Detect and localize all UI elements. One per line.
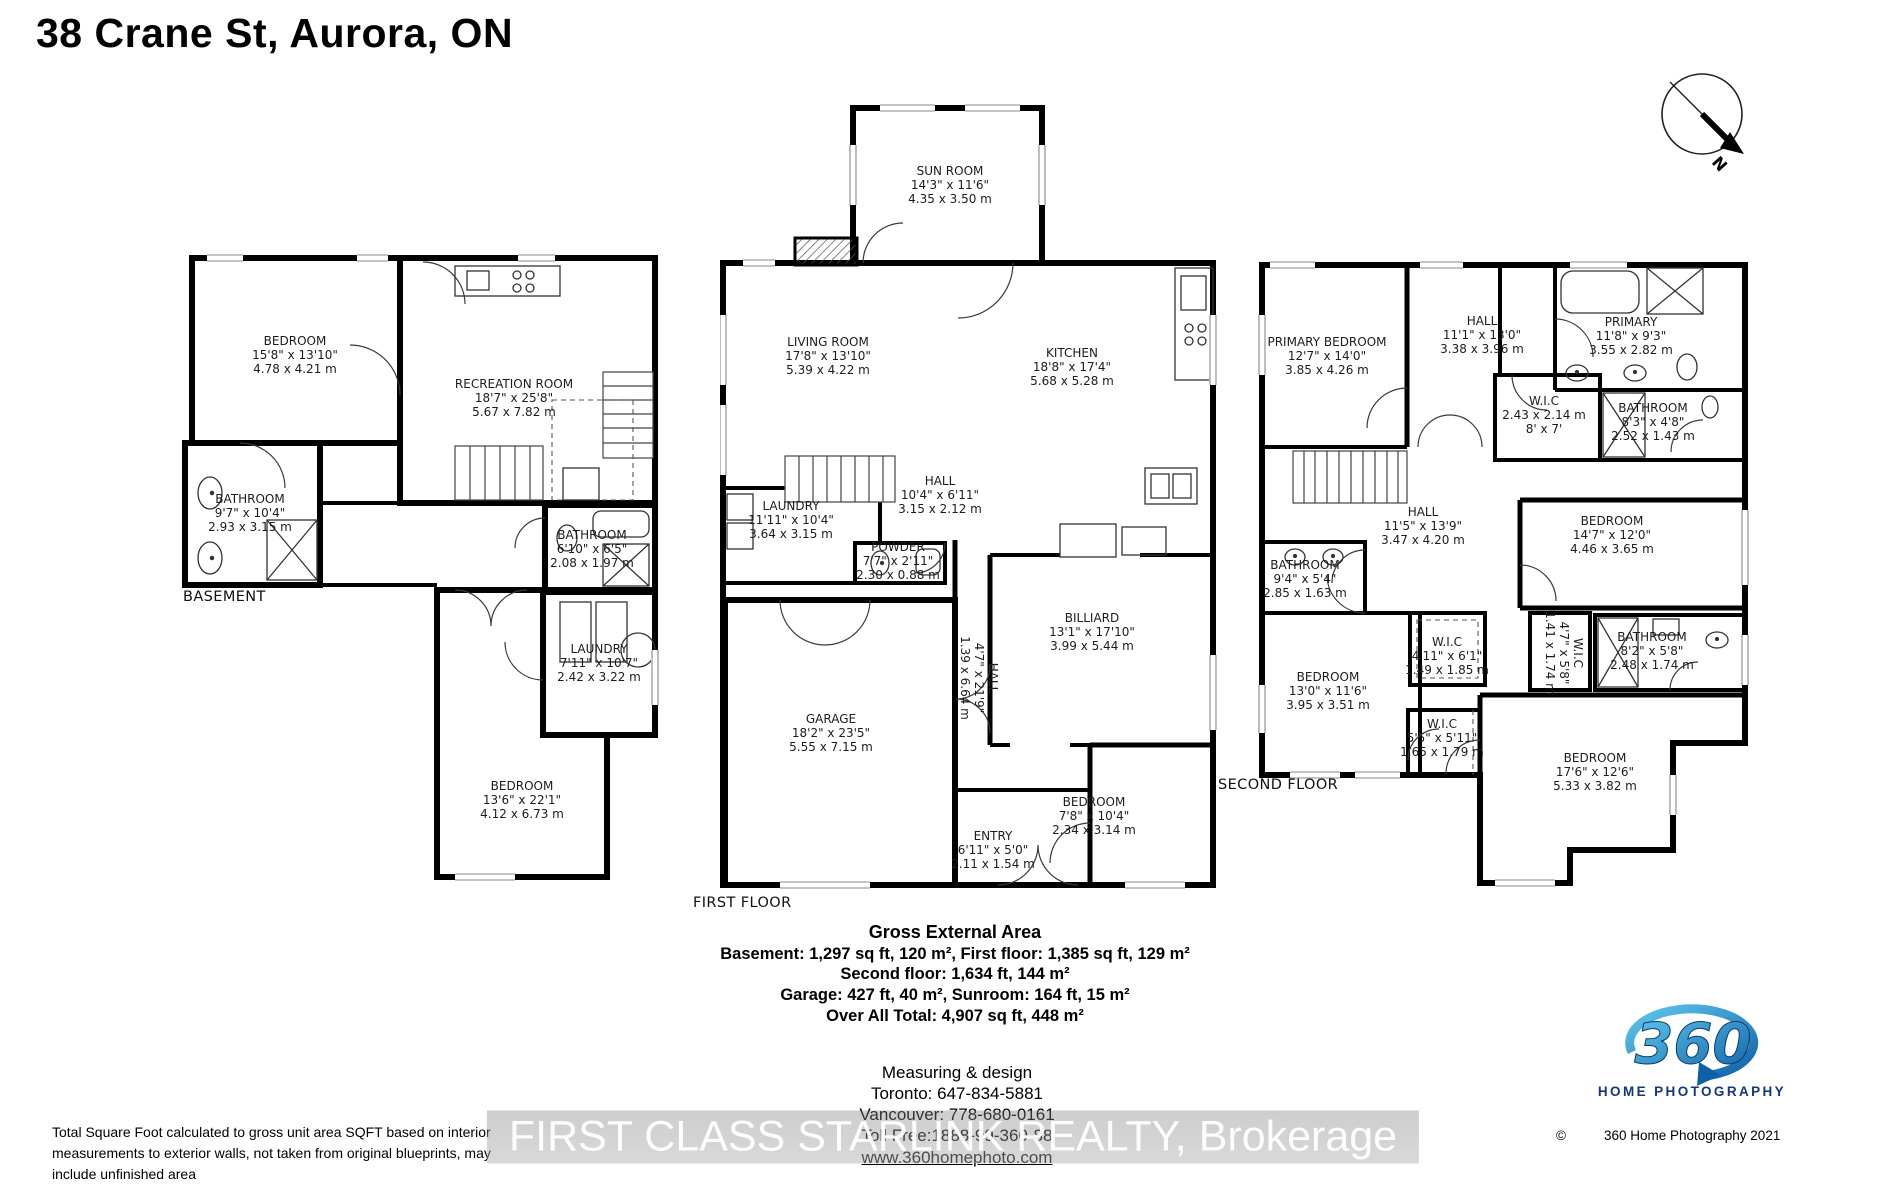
basement-room-label-bathroom-1: BATHROOM9'7" x 10'4"2.93 x 3.15 m xyxy=(208,493,292,535)
basement-room-label-bedroom-2: BEDROOM13'6" x 22'1"4.12 x 6.73 m xyxy=(480,780,564,822)
second-room-label-bathroom-3: BATHROOM8'2" x 5'8"2.48 x 1.74 m xyxy=(1610,631,1694,673)
contact-phone-toronto: Toronto: 647-834-5881 xyxy=(859,1083,1054,1104)
svg-text:N: N xyxy=(1708,153,1731,172)
copyright-line: © 360 Home Photography 2021 xyxy=(1556,1128,1780,1143)
gross-area-line: Second floor: 1,634 ft, 144 m² xyxy=(720,964,1190,985)
first-room-label-powder: POWDER7'7" x 2'11"2.30 x 0.88 m xyxy=(856,541,940,583)
copyright-credit: 360 Home Photography 2021 xyxy=(1604,1128,1780,1143)
second-room-label-bedroom-2: BEDROOM13'0" x 11'6"3.95 x 3.51 m xyxy=(1286,671,1370,713)
first-room-label-living: LIVING ROOM17'8" x 13'10"5.39 x 4.22 m xyxy=(785,336,871,378)
gross-area-line: Over All Total: 4,907 sq ft, 448 m² xyxy=(720,1006,1190,1027)
basement-walls xyxy=(155,250,665,910)
basement-room-label-bathroom-2: BATHROOM6'10" x 6'5"2.08 x 1.97 m xyxy=(550,529,634,571)
second-room-label-bathroom-2: BATHROOM9'4" x 5'4"2.85 x 1.63 m xyxy=(1263,559,1347,601)
basement-floor-name: BASEMENT xyxy=(183,589,266,605)
second-floor-name: SECOND FLOOR xyxy=(1218,777,1338,793)
second-room-label-wic-4: W.I.C5'5" x 5'11"1.65 x 1.79 m xyxy=(1400,718,1484,760)
first-room-label-sunroom: SUN ROOM14'3" x 11'6"4.35 x 3.50 m xyxy=(908,165,992,207)
first-room-label-billiard: BILLIARD13'1" x 17'10"3.99 x 5.44 m xyxy=(1049,612,1135,654)
second-room-label-primary-bedroom: PRIMARY BEDROOM12'7" x 14'0"3.85 x 4.26 … xyxy=(1267,336,1386,378)
compass-north-icon: N xyxy=(1650,60,1754,172)
basement-room-label-laundry: LAUNDRY7'11" x 10'7"2.42 x 3.22 m xyxy=(557,643,641,685)
floorplan-page: 38 Crane St, Aurora, ON N xyxy=(0,0,1900,1187)
disclaimer-text: Total Square Foot calculated to gross un… xyxy=(52,1122,491,1185)
stairs xyxy=(785,456,895,502)
kitchenette xyxy=(455,266,560,296)
second-room-label-bathroom-1: BATHROOM8'3" x 4'8"2.52 x 1.43 m xyxy=(1611,402,1695,444)
second-room-label-wic-1: W.I.C2.43 x 2.14 m8' x 7' xyxy=(1502,395,1586,437)
gross-area-line: Garage: 427 ft, 40 m², Sunroom: 164 ft, … xyxy=(720,985,1190,1006)
gross-area-title: Gross External Area xyxy=(720,921,1190,944)
gross-area-line: Basement: 1,297 sq ft, 120 m², First flo… xyxy=(720,944,1190,965)
second-room-label-bedroom-3: BEDROOM17'6" x 12'6"5.33 x 3.82 m xyxy=(1553,752,1637,794)
copyright-symbol: © xyxy=(1556,1128,1566,1143)
first-room-label-garage: GARAGE18'2" x 23'5"5.55 x 7.15 m xyxy=(789,713,873,755)
first-room-label-laundry: LAUNDRY11'11" x 10'4"3.64 x 3.15 m xyxy=(748,500,834,542)
first-room-label-bedroom: BEDROOM7'8" x 10'4"2.34 x 3.14 m xyxy=(1052,796,1136,838)
second-room-label-bedroom-1: BEDROOM14'7" x 12'0"4.46 x 3.65 m xyxy=(1570,515,1654,557)
second-room-label-wic-2: W.I.C4'11" x 6'1"1.49 x 1.85 m xyxy=(1405,636,1489,678)
gross-area-summary: Gross External Area Basement: 1,297 sq f… xyxy=(720,921,1190,1027)
svg-text:360: 360 xyxy=(1635,1012,1752,1077)
kitchen-fixtures xyxy=(1060,268,1213,557)
first-room-label-kitchen: KITCHEN18'8" x 17'4"5.68 x 5.28 m xyxy=(1030,347,1114,389)
photography-logo: 360 HOME PHOTOGRAPHY xyxy=(1590,990,1794,1099)
first-floor-name: FIRST FLOOR xyxy=(693,895,792,911)
second-room-label-wic-3: W.I.C4'7" x 5'8"1.41 x 1.74 m xyxy=(1542,611,1584,695)
first-room-label-hall-vertical: HALL4'7" x 21'9"1.39 x 6.64 m xyxy=(957,636,999,720)
page-title: 38 Crane St, Aurora, ON xyxy=(36,10,513,57)
first-room-label-entry: ENTRY6'11" x 5'0"2.11 x 1.54 m xyxy=(951,830,1035,872)
second-room-label-hall-upper: HALL11'1" x 13'0"3.38 x 3.96 m xyxy=(1440,315,1524,357)
contact-heading: Measuring & design xyxy=(859,1062,1054,1083)
basement-room-label-recreation: RECREATION ROOM18'7" x 25'8"5.67 x 7.82 … xyxy=(455,378,573,420)
second-room-label-primary-ensuite: PRIMARY11'8" x 9'3"3.55 x 2.82 m xyxy=(1589,316,1673,358)
logo-360-swirl-icon: 360 xyxy=(1607,990,1777,1086)
second-room-label-hall-main: HALL11'5" x 13'9"3.47 x 4.20 m xyxy=(1381,506,1465,548)
first-room-label-hall: HALL10'4" x 6'11"3.15 x 2.12 m xyxy=(898,475,982,517)
stairs xyxy=(1293,451,1407,503)
logo-company-name: HOME PHOTOGRAPHY xyxy=(1590,1084,1794,1099)
brokerage-watermark: FIRST CLASS STARLINK REALTY, Brokerage xyxy=(487,1111,1419,1164)
basement-room-label-bedroom-1: BEDROOM15'8" x 13'10"4.78 x 4.21 m xyxy=(252,335,338,377)
